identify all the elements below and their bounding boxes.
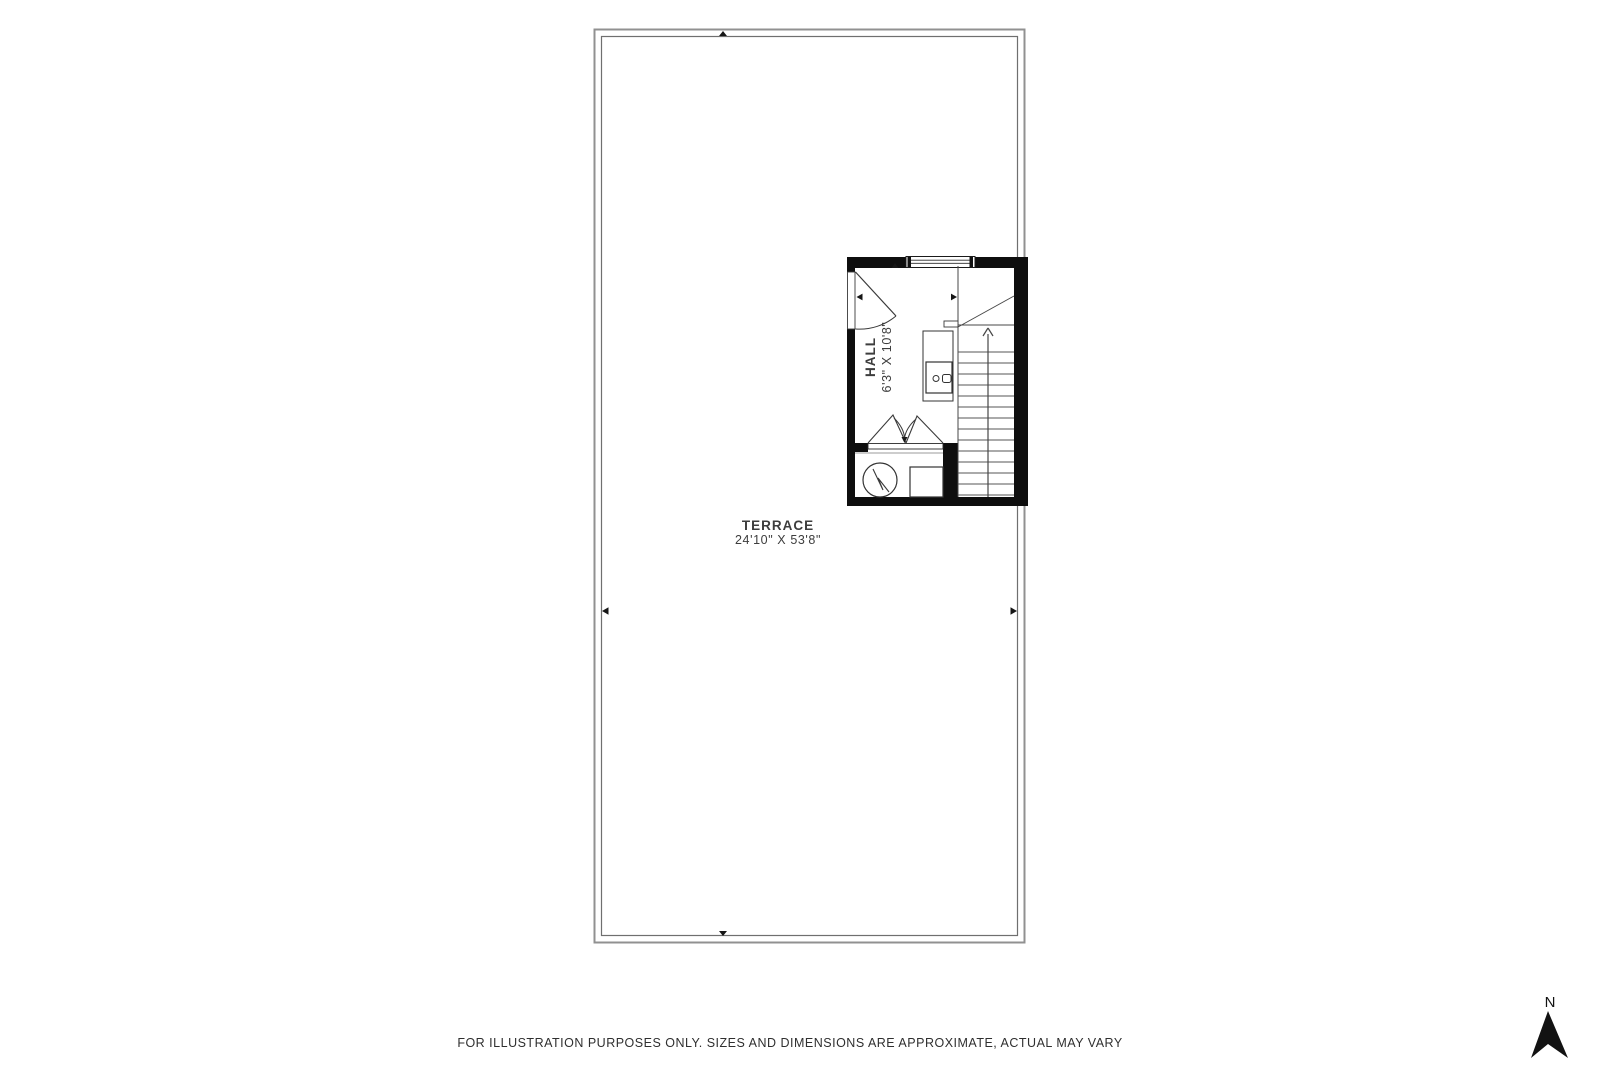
sink-faucet-icon (943, 375, 952, 383)
terrace-label: TERRACE (742, 518, 814, 533)
terrace-outer-border (595, 30, 1025, 943)
stair-newel (944, 321, 958, 327)
disclaimer-text: FOR ILLUSTRATION PURPOSES ONLY. SIZES AN… (457, 1036, 1123, 1050)
closet-equipment (863, 463, 943, 497)
closet-bifold-doors (855, 415, 943, 453)
stair-direction-arrow-icon (983, 328, 993, 497)
terrace-dimensions: 24'10" X 53'8" (735, 533, 821, 547)
hvac-unit (910, 467, 943, 497)
hall-wall-bottom (847, 497, 1028, 506)
door-opening (848, 272, 856, 329)
hall-dimensions: 6'3" X 10'8" (880, 322, 894, 393)
dimension-marker-right-icon (1011, 607, 1018, 615)
north-arrow-icon (1531, 1011, 1568, 1058)
stair-treads (958, 352, 1014, 495)
north-label: N (1545, 994, 1556, 1011)
hall-wall-left-lower (847, 329, 855, 506)
dimension-marker-top-icon (719, 31, 727, 36)
stair-break-line (958, 296, 1014, 327)
closet-stair-wall (943, 443, 958, 506)
floor-plan: HALL 6'3" X 10'8" TERRACE 24'10" X 53'8"… (0, 0, 1620, 1080)
door-leaf (856, 272, 897, 316)
hall-wall-right (1014, 257, 1028, 506)
bifold-panel-left (868, 415, 906, 443)
window-frame (906, 257, 975, 268)
sink-fixture (923, 331, 953, 401)
dimension-marker-left-icon (602, 607, 609, 615)
hall-room: HALL 6'3" X 10'8" (847, 257, 1028, 507)
hall-wall-left-upper (847, 257, 855, 272)
closet-wall-left (847, 443, 868, 452)
hall-marker-right-icon (951, 294, 957, 301)
hall-label: HALL (863, 337, 878, 377)
closet-door-sill (868, 444, 943, 450)
hall-marker-left-icon (857, 294, 863, 301)
sink-drain-icon (933, 376, 939, 382)
bifold-panel-right (906, 416, 943, 443)
floor-plan-canvas: HALL 6'3" X 10'8" TERRACE 24'10" X 53'8"… (0, 0, 1620, 1080)
hall-window (906, 257, 975, 268)
hall-entry-door (848, 272, 897, 329)
compass: N (1531, 994, 1568, 1058)
window-end-cap (908, 257, 912, 267)
window-end-cap (970, 257, 974, 267)
terrace-outline (595, 30, 1025, 943)
hall-wall-top-left (847, 257, 908, 268)
hall-dimension-markers (857, 263, 958, 300)
